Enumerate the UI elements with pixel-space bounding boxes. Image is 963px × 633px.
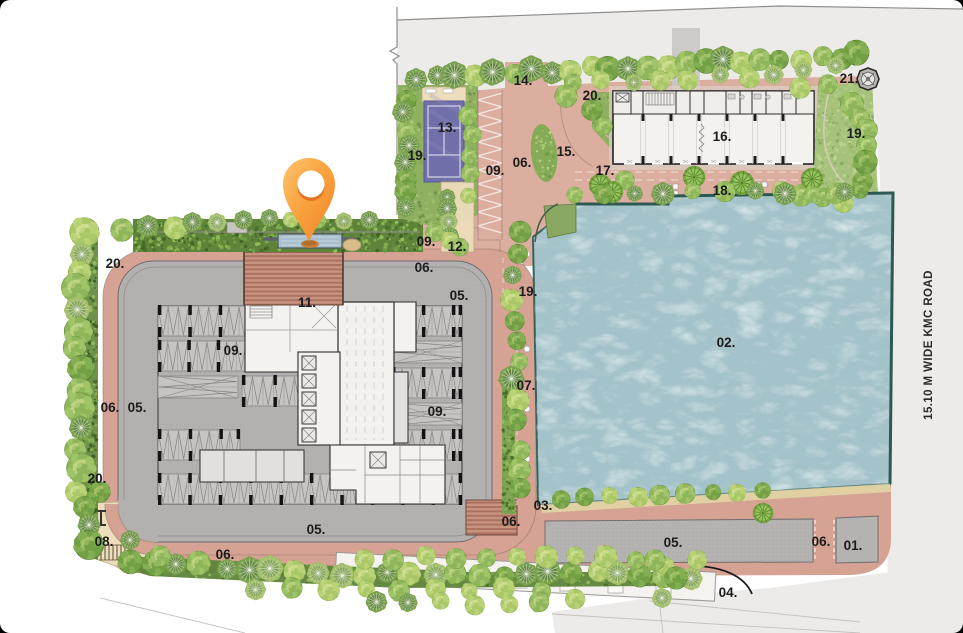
svg-text:03.: 03. — [534, 498, 553, 513]
svg-text:01.: 01. — [844, 538, 863, 553]
svg-text:06.: 06. — [513, 155, 532, 170]
svg-text:07.: 07. — [517, 378, 536, 393]
svg-text:15.10 M WIDE KMC ROAD: 15.10 M WIDE KMC ROAD — [923, 270, 935, 420]
svg-text:19.: 19. — [847, 126, 866, 141]
svg-text:09.: 09. — [428, 404, 447, 419]
svg-text:08.: 08. — [95, 534, 114, 549]
svg-text:18.: 18. — [713, 183, 732, 198]
svg-text:09.: 09. — [417, 234, 436, 249]
svg-text:19.: 19. — [519, 284, 538, 299]
svg-text:09.: 09. — [486, 163, 505, 178]
svg-text:17.: 17. — [596, 163, 615, 178]
svg-text:06.: 06. — [812, 534, 831, 549]
svg-text:16.: 16. — [713, 129, 732, 144]
svg-text:09.: 09. — [224, 343, 243, 358]
svg-text:05.: 05. — [128, 400, 147, 415]
svg-text:15.: 15. — [557, 144, 576, 159]
svg-text:05.: 05. — [307, 522, 326, 537]
svg-text:06.: 06. — [415, 260, 434, 275]
svg-text:13.: 13. — [438, 120, 457, 135]
svg-text:06.: 06. — [101, 400, 120, 415]
svg-text:04.: 04. — [719, 585, 738, 600]
svg-text:20.: 20. — [88, 471, 107, 486]
svg-text:06.: 06. — [216, 547, 235, 562]
svg-text:19.: 19. — [408, 148, 427, 163]
svg-text:02.: 02. — [717, 335, 736, 350]
svg-text:11.: 11. — [298, 295, 316, 310]
svg-text:14.: 14. — [514, 73, 533, 88]
svg-text:20.: 20. — [583, 88, 602, 103]
svg-text:12.: 12. — [448, 239, 467, 254]
svg-text:06.: 06. — [502, 514, 521, 529]
svg-text:05.: 05. — [450, 288, 469, 303]
svg-text:05.: 05. — [664, 535, 683, 550]
svg-text:21.: 21. — [840, 71, 859, 86]
svg-text:20.: 20. — [106, 256, 125, 271]
